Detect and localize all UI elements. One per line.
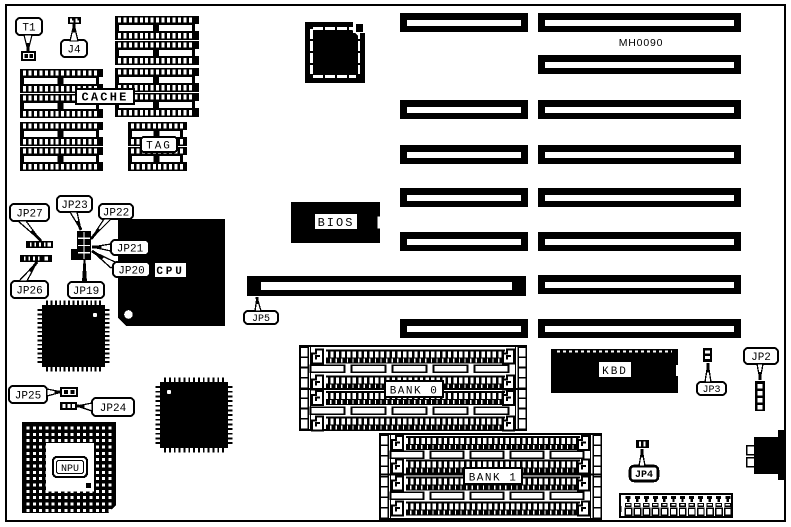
svg-text:CACHE: CACHE [81,91,128,105]
svg-text:JP3: JP3 [702,385,720,396]
svg-text:JP22: JP22 [103,207,129,219]
svg-text:JP5: JP5 [252,314,270,325]
svg-text:JP25: JP25 [15,390,41,402]
svg-text:BANK 0: BANK 0 [390,385,439,397]
svg-text:KBD: KBD [602,366,628,378]
svg-text:CPU: CPU [156,266,184,278]
svg-text:JP4: JP4 [635,470,653,481]
svg-text:JP23: JP23 [61,200,87,212]
svg-text:JP20: JP20 [118,265,144,277]
svg-text:JP26: JP26 [16,285,42,297]
svg-text:JP2: JP2 [751,352,771,364]
svg-text:JP24: JP24 [100,403,127,415]
svg-text:TAG: TAG [146,140,172,152]
svg-text:NPU: NPU [61,464,79,475]
svg-text:J4: J4 [67,44,81,56]
svg-text:JP27: JP27 [16,208,42,220]
svg-text:JP21: JP21 [117,243,144,255]
svg-text:T1: T1 [22,22,36,34]
svg-text:JP19: JP19 [73,286,99,298]
svg-text:BANK 1: BANK 1 [469,472,518,484]
svg-text:MH0090: MH0090 [619,37,664,49]
svg-text:BIOS: BIOS [318,216,355,230]
